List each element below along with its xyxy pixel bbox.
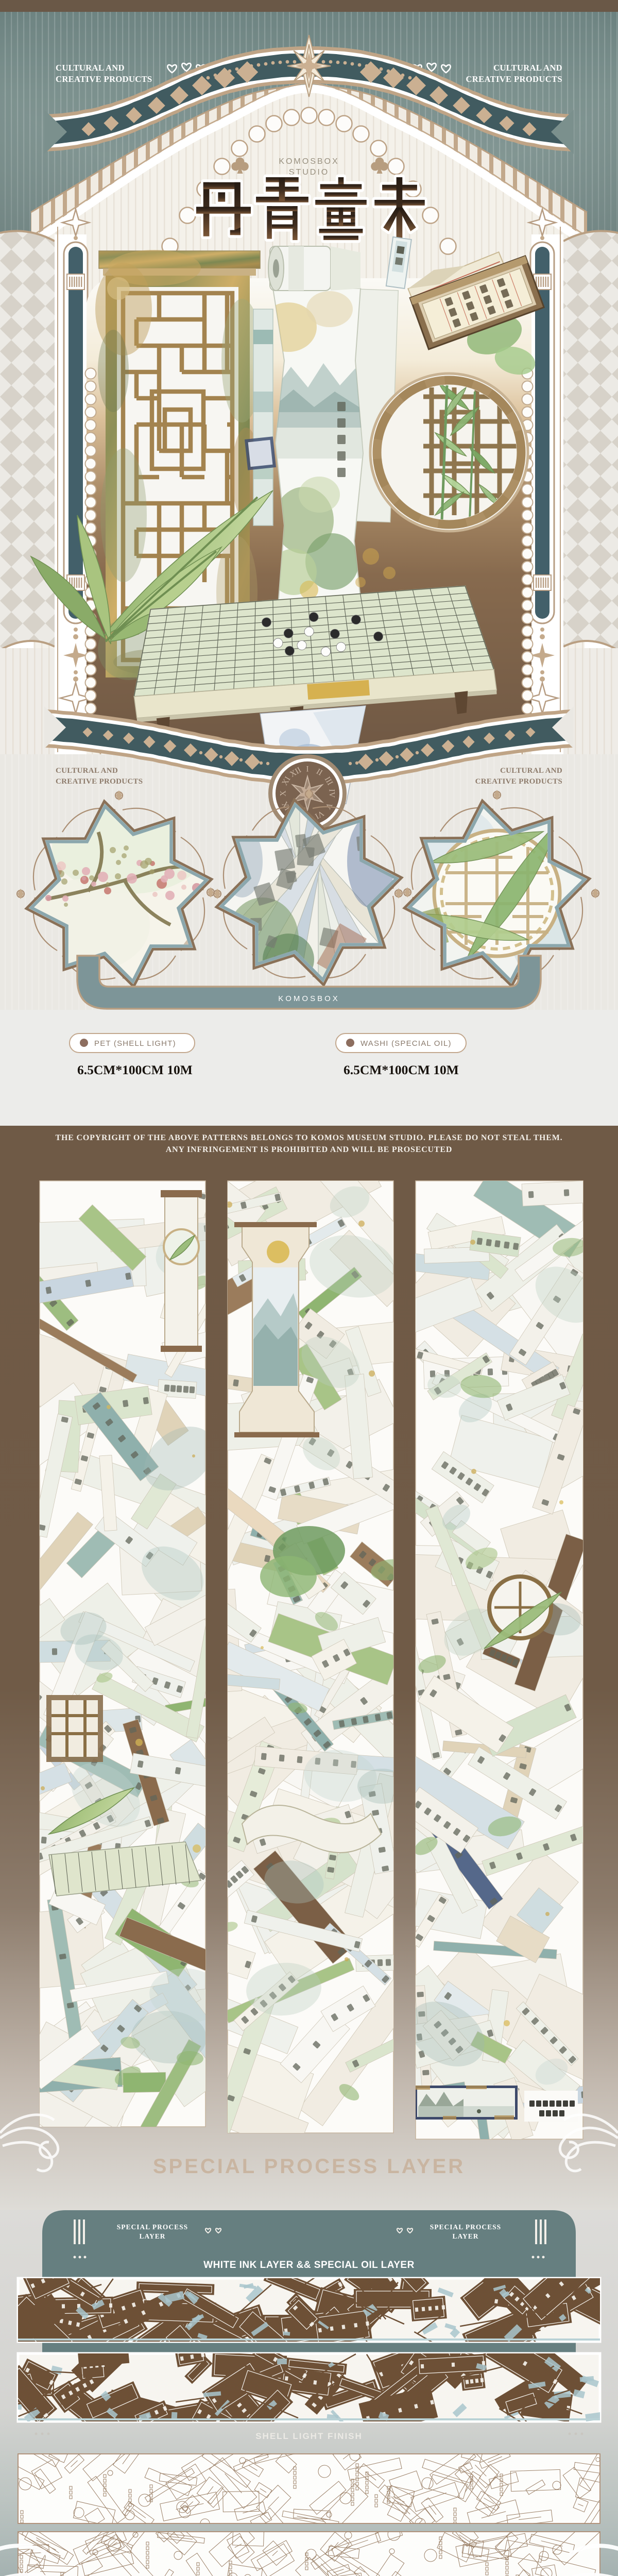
svg-text:SHELL LIGHT FINISH: SHELL LIGHT FINISH (255, 2431, 363, 2441)
svg-text:SPECIAL PROCESS: SPECIAL PROCESS (117, 2223, 188, 2231)
svg-text:CULTURAL AND: CULTURAL AND (56, 767, 118, 775)
svg-text:KOMOSBOX: KOMOSBOX (279, 157, 339, 166)
svg-text:SPECIAL PROCESS LAYER: SPECIAL PROCESS LAYER (153, 2155, 465, 2178)
svg-text:SPECIAL PROCESS: SPECIAL PROCESS (430, 2223, 501, 2231)
svg-text:LAYER: LAYER (139, 2232, 165, 2240)
svg-text:WHITE INK LAYER && SPECIAL OIL: WHITE INK LAYER && SPECIAL OIL LAYER (203, 2260, 415, 2270)
svg-text:IV: IV (328, 789, 336, 798)
svg-text:X: X (279, 790, 288, 796)
svg-text:KOMOSBOX: KOMOSBOX (278, 994, 340, 1003)
svg-text:PET (SHELL LIGHT): PET (SHELL LIGHT) (94, 1039, 176, 1048)
svg-text:CREATIVE PRODUCTS: CREATIVE PRODUCTS (466, 74, 562, 84)
svg-text:CULTURAL AND: CULTURAL AND (493, 63, 562, 73)
svg-text:CULTURAL AND: CULTURAL AND (500, 767, 562, 775)
svg-text:THE COPYRIGHT OF THE ABOVE PAT: THE COPYRIGHT OF THE ABOVE PATTERNS BELO… (56, 1133, 563, 1142)
svg-text:6.5CM*100CM 10M: 6.5CM*100CM 10M (77, 1062, 193, 1077)
svg-text:CULTURAL AND: CULTURAL AND (56, 63, 125, 73)
svg-text:CREATIVE PRODUCTS: CREATIVE PRODUCTS (56, 777, 143, 786)
svg-text:ANY INFRINGEMENT IS PROHIBITED: ANY INFRINGEMENT IS PROHIBITED AND WILL … (166, 1145, 452, 1154)
svg-text:6.5CM*100CM 10M: 6.5CM*100CM 10M (344, 1062, 459, 1077)
svg-text:CREATIVE PRODUCTS: CREATIVE PRODUCTS (56, 74, 152, 84)
svg-text:WASHI (SPECIAL OIL): WASHI (SPECIAL OIL) (360, 1039, 452, 1048)
svg-text:CREATIVE PRODUCTS: CREATIVE PRODUCTS (475, 777, 562, 786)
svg-text:I: I (306, 765, 308, 774)
svg-text:LAYER: LAYER (452, 2232, 478, 2240)
